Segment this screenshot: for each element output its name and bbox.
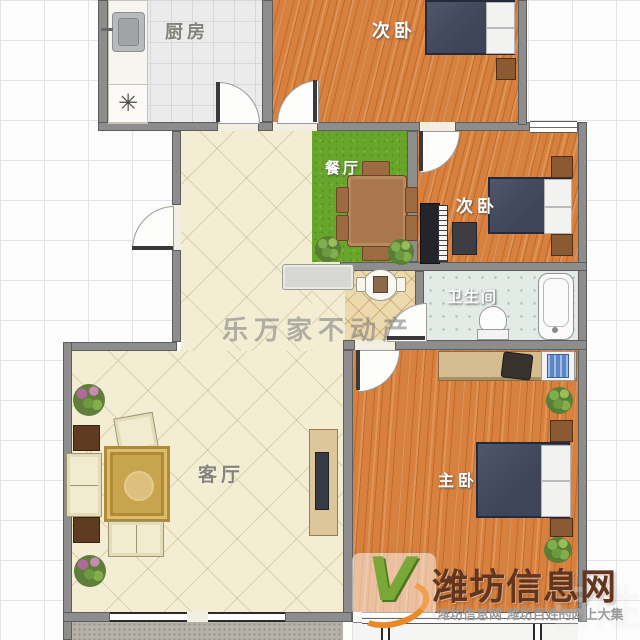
living-end-table-top xyxy=(73,425,100,451)
door-leaf-master xyxy=(356,350,360,390)
corridor-chair-left xyxy=(356,277,366,292)
wall-outer-right xyxy=(578,122,587,622)
wall-living-bottom-b xyxy=(285,612,352,622)
wall-kitchen-bed-divider xyxy=(262,0,273,122)
living-sofa-vertical xyxy=(66,453,102,517)
window-living-1 xyxy=(110,612,187,622)
master-pillows xyxy=(541,445,571,517)
bathroom-label: 卫生间 xyxy=(447,286,498,307)
master-nightstand-top xyxy=(550,420,573,442)
wall-bedroom-top-bottom xyxy=(317,122,420,131)
bedroom-mid-piano-keys xyxy=(438,205,448,262)
wall-bedroom-top-right xyxy=(518,0,527,125)
bathroom-toilet-tank xyxy=(477,329,509,340)
dining-chair-top xyxy=(362,161,390,176)
dining-chair-bottom xyxy=(362,246,390,261)
threshold-balcony xyxy=(187,612,208,622)
kitchen-label: 厨房 xyxy=(165,18,209,44)
living-plant-top xyxy=(73,384,105,416)
site-watermark-title: 潍坊信息网 xyxy=(432,558,617,610)
stove-burner-icon: ✳ xyxy=(118,89,138,117)
dining-label: 餐厅 xyxy=(325,157,361,178)
door-leaf-kitchen xyxy=(216,82,220,122)
window-bedroom-mid xyxy=(530,121,577,133)
dining-table xyxy=(347,175,407,247)
door-leaf-bedroom-mid xyxy=(419,131,423,171)
bedroom-mid-pillows xyxy=(544,179,572,234)
dining-plant-right xyxy=(388,239,414,265)
hall-cabinet xyxy=(282,264,354,290)
bedroom-mid-nightstand-top xyxy=(551,156,573,178)
master-wardrobe-shirt xyxy=(547,354,569,378)
kitchen-stove: ✳ xyxy=(108,84,148,123)
dining-chair-left-1 xyxy=(336,187,349,213)
living-plant-bottom xyxy=(74,555,106,587)
door-leaf-bedroom-top xyxy=(313,80,317,122)
door-arc-entry xyxy=(132,206,174,250)
wall-post-kitchen-bed xyxy=(258,122,273,131)
dining-chair-right-1 xyxy=(405,187,418,213)
living-end-table-bottom xyxy=(73,517,100,543)
master-label: 主卧 xyxy=(438,467,478,491)
wall-bathroom-left xyxy=(415,271,424,305)
kitchen-faucet xyxy=(101,28,113,31)
living-label: 客厅 xyxy=(198,460,244,487)
bedroom-mid-nightstand-bottom xyxy=(551,234,573,256)
bedroom-mid-label: 次卧 xyxy=(456,192,498,217)
wall-living-bottom-a xyxy=(63,612,110,622)
threshold-bedroom-mid xyxy=(420,122,455,131)
master-plant-top xyxy=(546,387,573,414)
site-watermark-tagline: 潍坊信息网 潍坊百姓的网上大集 xyxy=(437,604,624,623)
dining-chair-right-2 xyxy=(405,215,418,241)
bedroom-mid-stool xyxy=(452,222,477,255)
living-rug xyxy=(104,446,170,522)
kitchen-sink xyxy=(112,12,145,52)
corridor-table-centerpiece xyxy=(373,276,388,293)
bathroom-tub-faucet xyxy=(552,327,558,333)
living-loveseat xyxy=(108,521,164,557)
dining-plant-left xyxy=(315,236,341,262)
master-desk-chair xyxy=(501,351,534,380)
wall-hall-left-upper xyxy=(172,131,181,205)
bedroom-top-pillows xyxy=(486,2,515,54)
bedroom-mid-piano xyxy=(420,203,440,264)
dining-chair-left-2 xyxy=(336,215,349,241)
floorplan-canvas: ✳ 厨房 次卧 餐厅 次卧 xyxy=(0,0,640,640)
bedroom-top-nightstand xyxy=(496,58,516,80)
bedroom-top-label: 次卧 xyxy=(372,17,416,43)
living-tv xyxy=(315,452,329,510)
balcony-floor xyxy=(72,622,343,640)
corridor-chair-right xyxy=(396,277,406,292)
wall-kitchen-left xyxy=(98,0,108,131)
window-living-2 xyxy=(208,612,285,622)
window-bay-tick-2 xyxy=(533,624,542,640)
master-nightstand-bottom xyxy=(550,518,573,537)
wall-living-top-left xyxy=(63,342,177,351)
wall-hall-left-lower xyxy=(172,250,181,342)
agency-watermark: 乐万家不动产 xyxy=(222,310,414,347)
door-leaf-entry xyxy=(132,246,173,250)
